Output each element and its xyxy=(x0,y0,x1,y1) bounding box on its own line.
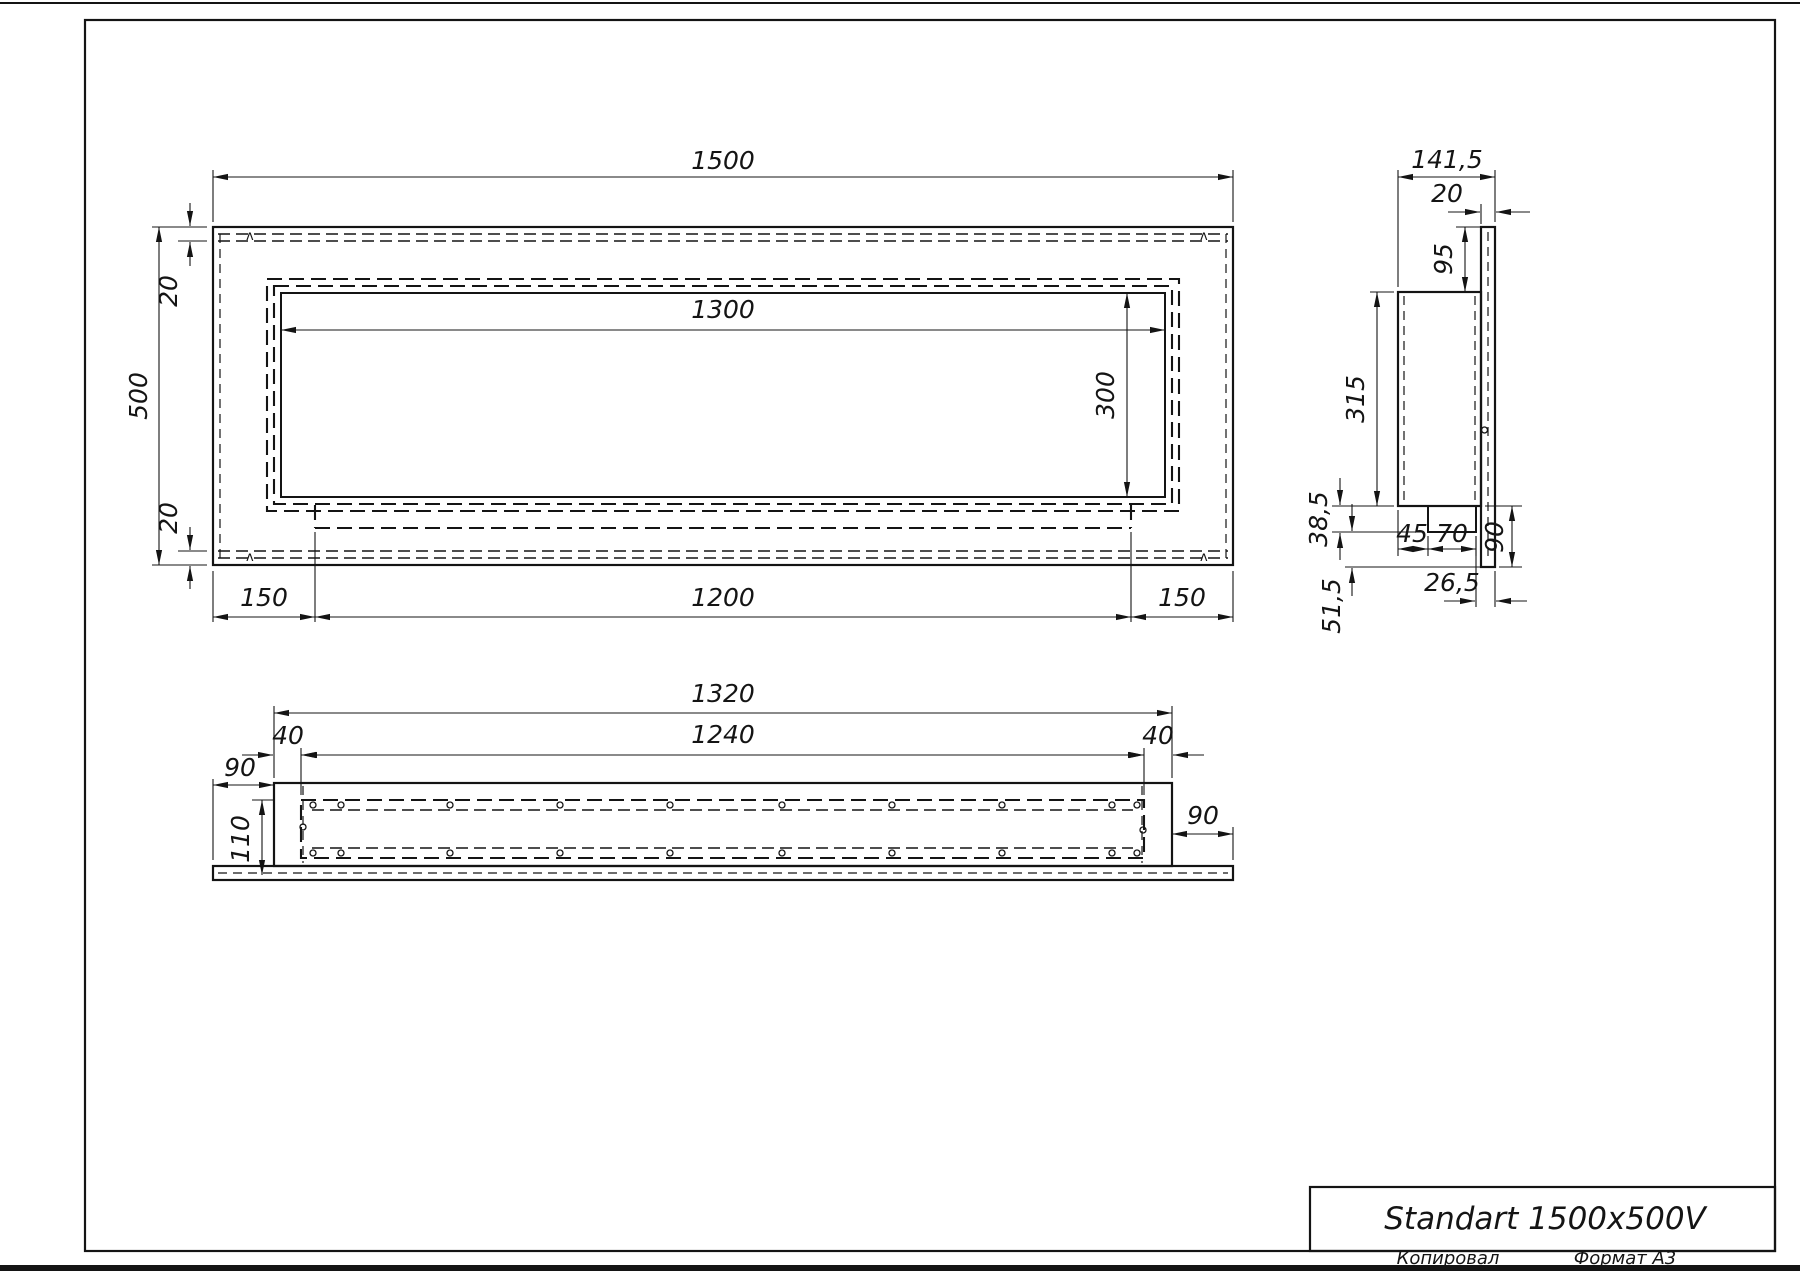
side-hole xyxy=(1482,427,1488,433)
drawing-sheet: ʌ ʌ ʌ ʌ 1500 500 20 20 xyxy=(0,0,1800,1273)
page-bottom-edge xyxy=(0,1265,1800,1271)
dim-front-opening-width: 1300 xyxy=(281,295,1165,330)
dim-label: 1200 xyxy=(691,583,755,612)
dim-bottom-left-inset: 40 xyxy=(242,721,334,755)
dim-label: 500 xyxy=(124,372,153,420)
dim-label: 20 xyxy=(154,502,183,534)
dim-label: 141,5 xyxy=(1411,145,1483,174)
weld-mark: ʌ xyxy=(246,229,254,244)
dim-label: 51,5 xyxy=(1317,578,1346,634)
dim-side-lip-row: 45 70 xyxy=(1396,510,1476,556)
bottom-view: 1320 1240 40 40 90 90 xyxy=(213,679,1233,880)
dim-label: 38,5 xyxy=(1304,491,1333,547)
copied-label: Копировал xyxy=(1397,1248,1500,1269)
dim-label: 90 xyxy=(224,753,256,782)
dim-front-top-inset: 20 xyxy=(154,203,207,307)
weld-mark: ʌ xyxy=(246,550,254,565)
dim-label: 90 xyxy=(1187,801,1219,830)
dim-bottom-right-inset: 40 xyxy=(1111,721,1204,755)
dim-front-opening-height: 300 xyxy=(1091,293,1127,497)
dim-label: 90 xyxy=(1480,521,1509,553)
dim-label: 1500 xyxy=(691,146,755,175)
dim-side-bottom-offset: 90 xyxy=(1480,506,1522,567)
dim-label: 1240 xyxy=(691,720,755,749)
dim-label: 150 xyxy=(1158,583,1206,612)
dim-side-panel-thickness: 20 xyxy=(1431,179,1530,224)
weld-mark: ʌ xyxy=(1200,229,1208,244)
side-firebox xyxy=(1398,292,1481,506)
side-view: 141,5 20 95 315 38,5 xyxy=(1304,145,1530,634)
front-view: ʌ ʌ ʌ ʌ 1500 500 20 20 xyxy=(124,146,1233,622)
dim-front-width: 1500 xyxy=(213,146,1233,222)
dim-label: 20 xyxy=(1431,179,1463,208)
dim-label: 45 xyxy=(1396,519,1428,548)
dim-label: 26,5 xyxy=(1424,568,1480,597)
dim-label: 150 xyxy=(240,583,288,612)
dim-side-box-height: 315 xyxy=(1341,292,1394,506)
dim-label: 315 xyxy=(1341,375,1370,423)
dim-side-top-offset: 95 xyxy=(1429,227,1480,292)
dim-front-bottom-row: 150 1200 150 xyxy=(213,532,1233,622)
dim-front-bottom-inset: 20 xyxy=(154,502,207,589)
dim-label: 40 xyxy=(272,721,304,750)
bottom-body xyxy=(274,783,1172,866)
dim-label: 110 xyxy=(226,815,255,863)
front-outer-panel xyxy=(213,227,1233,565)
dim-label: 1320 xyxy=(691,679,755,708)
front-tray-hidden xyxy=(315,505,1131,528)
front-hidden-edges xyxy=(218,234,1228,558)
product-title: Standart 1500x500V xyxy=(1384,1201,1708,1237)
format-label: Формат A3 xyxy=(1574,1248,1677,1269)
dim-bottom-inner-depth: 110 xyxy=(226,800,274,875)
dim-label: 1300 xyxy=(691,295,755,324)
weld-mark: ʌ xyxy=(1200,550,1208,565)
dim-label: 300 xyxy=(1091,371,1120,419)
dim-label: 70 xyxy=(1436,519,1468,548)
bottom-hidden-opening xyxy=(301,786,1144,863)
dim-label: 40 xyxy=(1142,721,1174,750)
dim-bottom-right-overhang: 90 xyxy=(1172,801,1233,860)
drawing-frame xyxy=(85,20,1775,1251)
dim-label: 20 xyxy=(154,275,183,307)
dim-label: 95 xyxy=(1429,243,1458,275)
title-block: Standart 1500x500V Копировал Формат A3 xyxy=(1310,1187,1775,1269)
